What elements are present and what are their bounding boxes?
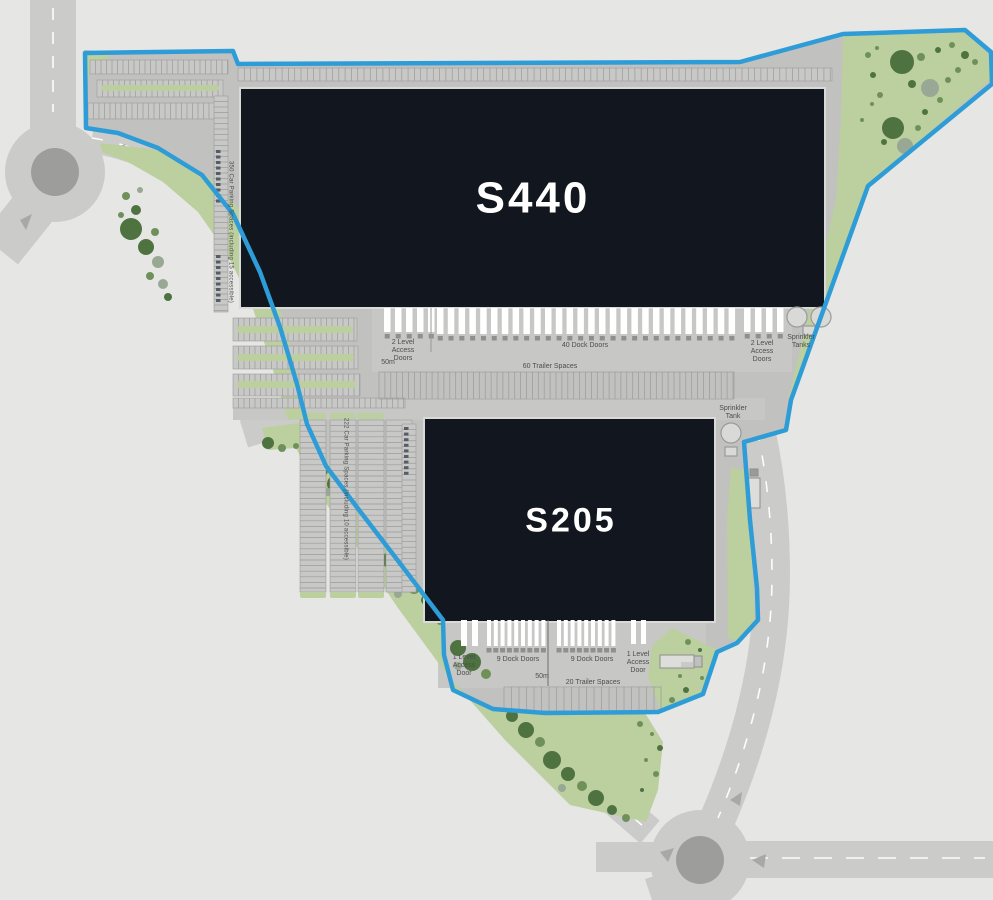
- dock-bay-stripe: [584, 620, 588, 646]
- tree-icon: [622, 814, 630, 822]
- dock-bay-stripe: [729, 308, 736, 334]
- parking-row: [238, 68, 832, 81]
- tree-icon: [875, 46, 879, 50]
- dock-door: [621, 336, 626, 341]
- tree-icon: [262, 437, 274, 449]
- accessible-space-marker: [404, 444, 409, 447]
- dock-bay-stripe: [437, 308, 444, 334]
- tree-icon: [949, 42, 955, 48]
- accessible-space-marker: [216, 172, 221, 175]
- dock-door: [459, 336, 464, 341]
- dock-bay-stripe: [535, 620, 539, 646]
- parking-row: [233, 398, 405, 408]
- parking-green-island: [237, 326, 353, 333]
- s205-dock-doors-b-label: 9 Dock Doors: [571, 656, 613, 664]
- tree-icon: [890, 50, 914, 74]
- dock-door: [632, 336, 637, 341]
- building-s205-label: S205: [525, 501, 616, 540]
- accessible-space-marker: [404, 449, 409, 452]
- dock-door: [665, 336, 670, 341]
- dock-door: [708, 336, 713, 341]
- dock-bay-stripe: [567, 308, 574, 334]
- accessible-space-marker: [404, 461, 409, 464]
- tree-icon: [118, 212, 124, 218]
- accessible-space-marker: [216, 161, 221, 164]
- dock-door: [697, 336, 702, 341]
- dock-bay-stripe: [685, 308, 692, 334]
- tree-icon: [151, 228, 159, 236]
- dock-bay-stripe: [469, 308, 476, 334]
- parking-green-island: [300, 592, 326, 598]
- dock-bay-stripe: [631, 308, 638, 334]
- accessible-space-marker: [216, 178, 221, 181]
- dock-door: [578, 336, 583, 341]
- dock-bay-stripe: [459, 308, 466, 334]
- dock-bay-stripe: [707, 308, 714, 334]
- dock-door: [407, 334, 412, 339]
- dock-bay-stripe: [384, 308, 391, 332]
- dock-bay-stripe: [521, 620, 525, 646]
- parking-row: [300, 420, 326, 592]
- accessible-space-marker: [216, 294, 221, 297]
- dock-door: [654, 336, 659, 341]
- accessible-space-marker: [216, 272, 221, 275]
- dock-door: [514, 648, 519, 653]
- accessible-space-marker: [216, 299, 221, 302]
- dock-bay-stripe: [664, 308, 671, 334]
- accessible-space-marker: [404, 427, 409, 430]
- dock-bay-stripe: [501, 620, 505, 646]
- accessible-space-marker: [216, 288, 221, 291]
- tree-icon: [685, 639, 691, 645]
- tree-icon: [683, 687, 689, 693]
- dock-door: [611, 648, 616, 653]
- tree-icon: [917, 53, 925, 61]
- accessible-space-marker: [404, 433, 409, 436]
- dock-bay-stripe: [631, 620, 636, 644]
- dock-bay-stripe: [766, 308, 773, 332]
- dock-door: [503, 336, 508, 341]
- tree-icon: [607, 805, 617, 815]
- dock-door: [686, 336, 691, 341]
- dock-bay-stripe: [514, 620, 518, 646]
- tree-icon: [122, 192, 130, 200]
- dock-door: [438, 336, 443, 341]
- site-plan: S440 S205 2 Level Access Doors 40 Dock D…: [0, 0, 993, 900]
- dock-bay-stripe: [610, 308, 617, 334]
- dock-door: [557, 336, 562, 341]
- dock-door: [675, 336, 680, 341]
- sprinkler-tank-icon: [721, 423, 741, 443]
- accessible-space-marker: [216, 261, 221, 264]
- tree-icon: [653, 771, 659, 777]
- accessible-space-marker: [216, 150, 221, 153]
- dock-door: [541, 648, 546, 653]
- tree-icon: [877, 92, 883, 98]
- accessible-space-marker: [216, 156, 221, 159]
- dock-bay-stripe: [417, 308, 424, 332]
- dock-door: [396, 334, 401, 339]
- tree-icon: [915, 125, 921, 131]
- dock-bay-stripe: [523, 308, 530, 334]
- dock-bay-stripe: [675, 308, 682, 334]
- dock-door: [470, 336, 475, 341]
- tree-icon: [937, 97, 943, 103]
- s440-access-right-label: 2 Level Access Doors: [743, 340, 781, 364]
- dock-door: [535, 336, 540, 341]
- accessible-space-marker: [404, 455, 409, 458]
- tree-icon: [881, 139, 887, 145]
- dock-door: [492, 336, 497, 341]
- accessible-space-marker: [216, 266, 221, 269]
- dock-bay-stripe: [472, 620, 478, 646]
- dock-door: [481, 336, 486, 341]
- tree-icon: [120, 218, 142, 240]
- dock-door: [507, 648, 512, 653]
- s205-access-left-label: 1 Level Access Door: [449, 654, 479, 678]
- dock-door: [546, 336, 551, 341]
- tree-icon: [138, 239, 154, 255]
- dock-door: [385, 334, 390, 339]
- dock-bay-stripe: [541, 620, 545, 646]
- dock-bay-stripe: [598, 620, 602, 646]
- dock-door: [493, 648, 498, 653]
- accessible-space-marker: [216, 183, 221, 186]
- tree-icon: [481, 669, 491, 679]
- accessible-space-marker: [216, 167, 221, 170]
- tree-icon: [669, 697, 675, 703]
- dock-door: [567, 336, 572, 341]
- tree-icon: [921, 79, 939, 97]
- accessible-space-marker: [404, 466, 409, 469]
- parking-green-island: [358, 413, 384, 419]
- accessible-space-marker: [216, 255, 221, 258]
- tree-icon: [865, 52, 871, 58]
- dock-door: [611, 336, 616, 341]
- dock-door: [500, 648, 505, 653]
- parking-green-island: [330, 592, 356, 598]
- parking-row: [358, 420, 384, 592]
- dock-door: [584, 648, 589, 653]
- dock-bay-stripe: [744, 308, 751, 332]
- tree-icon: [535, 737, 545, 747]
- dock-door: [719, 336, 724, 341]
- tree-icon: [158, 279, 168, 289]
- dock-bay-stripe: [406, 308, 413, 332]
- s440-parking-count-label: 350 Car Parking Spaces (including 15 acc…: [227, 161, 234, 303]
- dock-bay-stripe: [696, 308, 703, 334]
- dock-bay-stripe: [588, 308, 595, 334]
- dock-bay-stripe: [599, 308, 606, 334]
- tree-icon: [961, 51, 969, 59]
- parking-row: [90, 60, 228, 74]
- dock-door: [570, 648, 575, 653]
- dock-bay-stripe: [480, 308, 487, 334]
- dock-bay-stripe: [577, 308, 584, 334]
- dock-bay-stripe: [507, 620, 511, 646]
- tree-icon: [678, 674, 682, 678]
- tree-icon: [137, 187, 143, 193]
- dock-door: [524, 336, 529, 341]
- dock-bay-stripe: [513, 308, 520, 334]
- dock-bay-stripe: [577, 620, 581, 646]
- accessible-space-marker: [404, 472, 409, 475]
- dock-door: [589, 336, 594, 341]
- dock-bay-stripe: [611, 620, 615, 646]
- tree-icon: [561, 767, 575, 781]
- tree-icon: [870, 72, 876, 78]
- dock-door: [591, 648, 596, 653]
- parking-green-island: [237, 354, 354, 361]
- tree-icon: [577, 781, 587, 791]
- dock-door: [767, 334, 772, 339]
- tree-icon: [293, 443, 299, 449]
- accessible-space-marker: [216, 283, 221, 286]
- dock-bay-stripe: [591, 620, 595, 646]
- dock-door: [577, 648, 582, 653]
- tree-icon: [644, 758, 648, 762]
- dock-bay-stripe: [556, 308, 563, 334]
- dock-door: [534, 648, 539, 653]
- dock-door: [756, 334, 761, 339]
- tree-icon: [131, 205, 141, 215]
- s205-sprinkler-tank-label: Sprinkler Tank: [716, 405, 750, 421]
- tree-icon: [700, 676, 704, 680]
- s205-parking-count-label: 222 Car Parking Spaces (including 10 acc…: [342, 418, 349, 560]
- dock-door: [513, 336, 518, 341]
- tree-icon: [882, 117, 904, 139]
- tree-icon: [698, 648, 702, 652]
- tree-icon: [870, 102, 874, 106]
- tree-icon: [146, 272, 154, 280]
- s440-scale-label: 50m: [381, 359, 395, 367]
- dock-bay-stripe: [653, 308, 660, 334]
- tree-icon: [558, 784, 566, 792]
- accessible-space-marker: [216, 277, 221, 280]
- dock-bay-stripe: [605, 620, 609, 646]
- tree-icon: [935, 47, 941, 53]
- dock-door: [521, 648, 526, 653]
- parking-row: [88, 103, 221, 119]
- dock-door: [449, 336, 454, 341]
- s440-dock-doors-label: 40 Dock Doors: [562, 342, 608, 350]
- s205-scale-label: 50m: [535, 673, 549, 681]
- tree-icon: [543, 751, 561, 769]
- s205-dock-doors-a-label: 9 Dock Doors: [497, 656, 539, 664]
- tree-icon: [518, 722, 534, 738]
- tree-icon: [278, 444, 286, 452]
- accessible-space-marker: [404, 438, 409, 441]
- building-s440-label: S440: [476, 174, 591, 225]
- tree-icon: [657, 745, 663, 751]
- dock-bay-stripe: [755, 308, 762, 332]
- s205-access-right-label: 1 Level Access Door: [623, 651, 653, 675]
- sprinkler-tank-icon: [787, 307, 807, 327]
- dock-bay-stripe: [487, 620, 491, 646]
- dock-bay-stripe: [494, 620, 498, 646]
- dock-bay-stripe: [642, 308, 649, 334]
- tree-icon: [972, 59, 978, 65]
- tree-icon: [650, 732, 654, 736]
- dock-bay-stripe: [448, 308, 455, 334]
- s440-sprinkler-tanks-label: Sprinkler Tanks: [780, 334, 822, 350]
- dock-door: [418, 334, 423, 339]
- dock-bay-stripe: [777, 308, 784, 332]
- dock-bay-stripe: [557, 620, 561, 646]
- dock-bay-stripe: [621, 308, 628, 334]
- parking-green-island: [358, 592, 384, 598]
- site-plan-map: [0, 0, 993, 900]
- tree-icon: [640, 788, 644, 792]
- dock-door: [597, 648, 602, 653]
- dock-bay-stripe: [571, 620, 575, 646]
- dock-door: [745, 334, 750, 339]
- dock-door: [604, 648, 609, 653]
- dock-bay-stripe: [461, 620, 467, 646]
- dock-bay-stripe: [641, 620, 646, 644]
- dock-bay-stripe: [564, 620, 568, 646]
- dock-door: [643, 336, 648, 341]
- dock-door: [729, 336, 734, 341]
- dock-bay-stripe: [718, 308, 725, 334]
- tree-icon: [945, 77, 951, 83]
- dock-door: [527, 648, 532, 653]
- dock-bay-stripe: [491, 308, 498, 334]
- dock-bay-stripe: [502, 308, 509, 334]
- dock-door: [557, 648, 562, 653]
- parking-green-island: [101, 85, 219, 91]
- dock-bay-stripe: [545, 308, 552, 334]
- dock-door: [600, 336, 605, 341]
- tree-icon: [908, 80, 916, 88]
- dock-door: [563, 648, 568, 653]
- s205-trailer-spaces-label: 20 Trailer Spaces: [566, 679, 620, 687]
- tree-icon: [152, 256, 164, 268]
- tree-icon: [860, 118, 864, 122]
- dock-bay-stripe: [534, 308, 541, 334]
- tree-icon: [637, 721, 643, 727]
- tree-icon: [588, 790, 604, 806]
- s440-trailer-spaces-label: 60 Trailer Spaces: [523, 363, 577, 371]
- dock-bay-stripe: [395, 308, 402, 332]
- tree-icon: [164, 293, 172, 301]
- tree-icon: [922, 109, 928, 115]
- tree-icon: [955, 67, 961, 73]
- dock-door: [487, 648, 492, 653]
- dock-bay-stripe: [528, 620, 532, 646]
